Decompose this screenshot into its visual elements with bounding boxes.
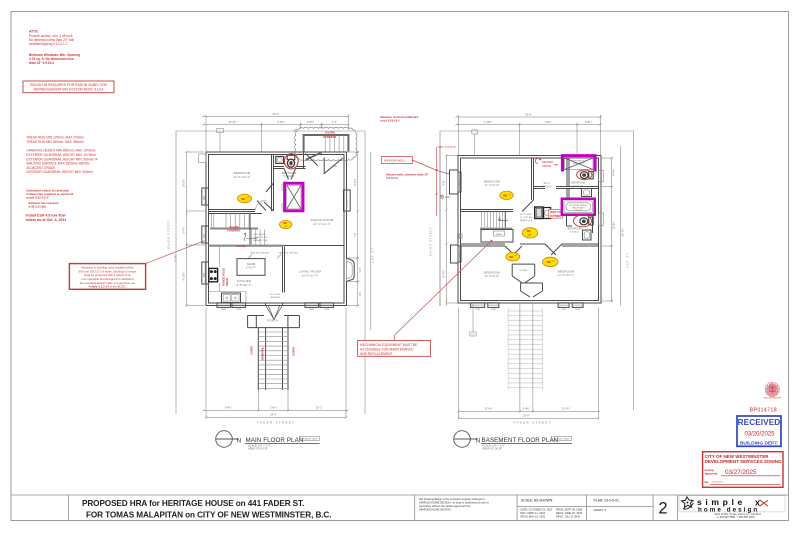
svg-text:W.I.C.: W.I.C. xyxy=(544,182,551,185)
svg-text:REVS: MAY 10, 2032: REVS: MAY 10, 2032 xyxy=(521,515,546,519)
svg-text:VAULTED CEILING: VAULTED CEILING xyxy=(250,252,269,255)
svg-text:23'-0": 23'-0" xyxy=(525,113,532,117)
svg-text:2636: 2636 xyxy=(309,309,315,311)
svg-text:03/20/2025: 03/20/2025 xyxy=(744,432,775,438)
svg-text:5'-8¾": 5'-8¾" xyxy=(277,120,284,124)
svg-text:7'-8¼": 7'-8¼" xyxy=(544,120,551,124)
svg-text:DEPRESSURIZATION SYSTEM BCBC 9: DEPRESSURIZATION SYSTEM BCBC 9.13.4 xyxy=(34,88,104,92)
svg-text:9'-8¾": 9'-8¾" xyxy=(353,178,357,185)
svg-text:INTERIOR GUARDRAIL HEIGHT MIN.: INTERIOR GUARDRAIL HEIGHT MIN. 900mm xyxy=(26,170,93,174)
svg-text:4'-6": 4'-6" xyxy=(358,291,362,296)
svg-text:FADER STREET: FADER STREET xyxy=(257,420,295,424)
svg-text:weatherstripping 9.10.2.1.2: weatherstripping 9.10.2.1.2 xyxy=(29,42,68,46)
svg-text:LOT 57: LOT 57 xyxy=(371,247,375,263)
svg-text:BASEMENT FLOOR PLAN: BASEMENT FLOOR PLAN xyxy=(482,437,559,444)
svg-text:11'-6¾": 11'-6¾" xyxy=(485,407,494,411)
svg-text:BATHROOM: BATHROOM xyxy=(571,181,585,184)
svg-text:3'-8½": 3'-8½" xyxy=(307,120,314,124)
svg-text:BEDROOM: BEDROOM xyxy=(234,171,251,175)
svg-text:PLAN: 23-0-6-01: PLAN: 23-0-6-01 xyxy=(594,499,620,503)
svg-text:BP014718: BP014718 xyxy=(750,408,777,414)
svg-text:ROUGH-IN REQUIRED FOR RADON SU: ROUGH-IN REQUIRED FOR RADON SUBFLOOR xyxy=(30,83,107,87)
svg-text:BEDROOM: BEDROOM xyxy=(484,271,501,275)
svg-text:2036: 2036 xyxy=(491,309,497,311)
svg-text:MECHANICAL EQUIPMENT MUST BE: MECHANICAL EQUIPMENT MUST BE xyxy=(360,343,418,347)
svg-text:FOR TOMAS MALAPITAN on CITY OF: FOR TOMAS MALAPITAN on CITY OF NEW WESTM… xyxy=(86,511,331,520)
svg-text:9'8"x4'8": 9'8"x4'8" xyxy=(574,210,582,212)
svg-text:Approved:: Approved: xyxy=(705,471,719,475)
svg-text:RECEIVED: RECEIVED xyxy=(738,418,781,427)
svg-text:5'-0¾": 5'-0¾" xyxy=(181,226,185,233)
svg-text:modonnor: modonnor xyxy=(712,480,724,484)
svg-text:INSULATION: INSULATION xyxy=(573,162,585,165)
svg-text:7'-9": 7'-9" xyxy=(353,232,357,237)
svg-text:SD: SD xyxy=(527,229,531,233)
svg-text:BATHROOM: BATHROOM xyxy=(568,227,582,230)
svg-text:12'-2¼": 12'-2¼" xyxy=(442,270,446,279)
svg-text:BEDROOM: BEDROOM xyxy=(558,270,575,274)
svg-text:2036: 2036 xyxy=(236,309,242,311)
svg-text:GUARD: GUARD xyxy=(236,245,245,248)
svg-text:drain: drain xyxy=(445,196,451,199)
svg-text:BUILDING DEPT.: BUILDING DEPT. xyxy=(740,441,778,447)
svg-text:REVS: JUNE 07, 2023: REVS: JUNE 07, 2023 xyxy=(556,511,583,515)
svg-text:VAULTED CEILING: VAULTED CEILING xyxy=(279,252,298,255)
svg-text:-12'-4"x13'-0"-: -12'-4"x13'-0"- xyxy=(557,274,575,277)
svg-text:WASH: WASH xyxy=(496,233,502,236)
svg-text:9.32.3.3.1(b): 9.32.3.3.1(b) xyxy=(29,205,46,209)
svg-text:@ 7 7/8" EA.: @ 7 7/8" EA. xyxy=(520,216,533,219)
svg-text:5046: 5046 xyxy=(332,166,338,168)
svg-text:-12'-2"x9'-8"-: -12'-2"x9'-8"- xyxy=(484,184,500,187)
svg-text:HANDRAIL: HANDRAIL xyxy=(262,346,265,360)
svg-text:AREA 707.00 SF: AREA 707.00 SF xyxy=(482,446,502,450)
svg-text:DN 14 RISE: DN 14 RISE xyxy=(254,234,266,236)
svg-text:5'-1"x12'-1": 5'-1"x12'-1" xyxy=(283,176,295,178)
svg-text:CO: CO xyxy=(284,226,288,228)
svg-text:4'-8¼": 4'-8¼" xyxy=(585,120,592,124)
svg-text:9'-10½": 9'-10½" xyxy=(181,272,185,281)
svg-text:DATE: OCTOBER 25, 2007: DATE: OCTOBER 25, 2007 xyxy=(521,508,553,512)
svg-text:DINING ROOM: DINING ROOM xyxy=(311,218,334,222)
svg-text:-9'-5"x10'-2"-: -9'-5"x10'-2"- xyxy=(235,284,252,287)
svg-text:NEWAIL 7'-50": NEWAIL 7'-50" xyxy=(254,239,269,242)
svg-text:23'-0": 23'-0" xyxy=(270,413,277,417)
svg-text:ISLAND: ISLAND xyxy=(247,263,256,266)
svg-text:CLOSET: CLOSET xyxy=(519,270,528,272)
svg-text:10'-2¼": 10'-2¼" xyxy=(181,179,185,188)
svg-text:AREA 707.00 SF: AREA 707.00 SF xyxy=(248,446,268,450)
svg-text:SIMPLEX HOME DESIGN.: SIMPLEX HOME DESIGN. xyxy=(419,508,452,512)
svg-text:2036: 2036 xyxy=(561,309,567,311)
svg-text:10'-1": 10'-1" xyxy=(316,406,323,410)
svg-text:4046: 4046 xyxy=(204,196,206,200)
svg-text:03/27/2025: 03/27/2025 xyxy=(725,469,757,476)
svg-text:SD: SD xyxy=(283,221,287,225)
svg-text:Window wells, minimum width 30: Window wells, minimum width 30" xyxy=(386,172,429,176)
svg-text:2636: 2636 xyxy=(324,309,330,311)
svg-text:By:: By: xyxy=(705,480,709,484)
svg-text:11'-0¾": 11'-0¾" xyxy=(562,407,571,411)
svg-text:SPACE: SPACE xyxy=(542,164,551,168)
svg-text:N: N xyxy=(476,438,481,445)
svg-text:12'-6¾": 12'-6¾" xyxy=(229,120,238,124)
svg-text:SCALE: AS SHOWN: SCALE: AS SHOWN xyxy=(521,499,553,503)
svg-text:SIMPLEX HOME DESIGN. no body i: SIMPLEX HOME DESIGN. no body is authoriz… xyxy=(419,501,489,505)
svg-text:AS-BUILT VIEW: AS-BUILT VIEW xyxy=(301,437,318,440)
svg-text:9'-4¾": 9'-4¾" xyxy=(612,168,616,175)
svg-text:2: 2 xyxy=(658,500,667,518)
svg-text:CO: CO xyxy=(528,234,532,237)
svg-text:toilets as of Oct. 4, 2011: toilets as of Oct. 4, 2011 xyxy=(26,218,67,222)
svg-text:6'-8¾": 6'-8¾" xyxy=(225,406,232,410)
svg-text:4'-0": 4'-0" xyxy=(358,267,362,272)
svg-text:3068 W/S: 3068 W/S xyxy=(270,297,280,299)
svg-text:AS-BUILT VIEW: AS-BUILT VIEW xyxy=(553,437,570,440)
svg-text:than 15" 9.9.10.2: than 15" 9.9.10.2 xyxy=(29,61,54,65)
svg-text:REVS: JULY 8, 2034: REVS: JULY 8, 2034 xyxy=(556,515,581,519)
svg-text:HANDRAIL: HANDRAIL xyxy=(323,135,337,139)
svg-text:GUARD: GUARD xyxy=(325,131,335,135)
svg-text:12'-8¾": 12'-8¾" xyxy=(612,221,616,230)
svg-text:ACCESSIBLE FOR MAINTENANCE: ACCESSIBLE FOR MAINTENANCE xyxy=(360,347,414,351)
svg-text:3'-4"x7'-7": 3'-4"x7'-7" xyxy=(246,268,256,270)
svg-text:3046: 3046 xyxy=(459,254,461,258)
svg-text:7'-1"x4'-11": 7'-1"x4'-11" xyxy=(573,185,584,187)
svg-text:BEDROOM: BEDROOM xyxy=(484,180,501,184)
svg-text:Article 4.1.5.14 of the BCBC.: Article 4.1.5.14 of the BCBC. xyxy=(89,285,127,289)
svg-text:2'-4¾": 2'-4¾" xyxy=(523,407,530,411)
svg-text:2'-0¾": 2'-0¾" xyxy=(270,406,277,410)
svg-text:F.D.: F.D. xyxy=(471,334,475,336)
svg-text:MAIN FLOOR PLAN: MAIN FLOOR PLAN xyxy=(246,437,304,444)
svg-text:DEVELOPMENT SERVICES ZONING: DEVELOPMENT SERVICES ZONING xyxy=(705,459,782,464)
svg-text:this drawing/design is the exc: this drawing/design is the exclusive pro… xyxy=(419,497,485,501)
svg-text:WALLBOARD: WALLBOARD xyxy=(572,206,585,209)
svg-text:17'-8¾": 17'-8¾" xyxy=(174,254,178,263)
svg-text:REVS: SEPT 09, 2008: REVS: SEPT 09, 2008 xyxy=(556,508,583,512)
svg-text:MAJOR STREET: MAJOR STREET xyxy=(168,220,171,249)
svg-text:9'-8": 9'-8" xyxy=(442,180,446,185)
svg-text:req'd 9.29.10.4: req'd 9.29.10.4 xyxy=(380,119,400,123)
svg-text:DRWN: 3: DRWN: 3 xyxy=(594,508,607,512)
svg-text:-13'-5"x12'-9"-: -13'-5"x12'-9"- xyxy=(301,275,320,278)
svg-text:23'-0": 23'-0" xyxy=(272,112,279,116)
svg-text:-11'-8"x10'-2"-: -11'-8"x10'-2"- xyxy=(233,176,251,179)
svg-text:HANDRAIL: HANDRAIL xyxy=(227,229,241,232)
svg-text:Install CSA 4.8 low flow: Install CSA 4.8 low flow xyxy=(26,213,66,217)
svg-text:MAJOR STREET: MAJOR STREET xyxy=(430,227,433,256)
svg-text:HEADR. 6'-8": HEADR. 6'-8" xyxy=(520,219,533,222)
svg-text:9.9.10.1.2: 9.9.10.1.2 xyxy=(386,176,398,180)
svg-text:-10'-4"x9'-8"-: -10'-4"x9'-8"- xyxy=(484,275,500,278)
svg-text:4046: 4046 xyxy=(459,182,461,186)
svg-text:FADER STREET: FADER STREET xyxy=(514,420,552,424)
svg-text:TREAD RUN MIN 255mm, MAX 355mm: TREAD RUN MIN 255mm, MAX 355mm xyxy=(26,140,83,144)
svg-text:reproduce without the written: reproduce without the written approval f… xyxy=(419,504,471,508)
svg-text:panel 9.32.3.5.3: panel 9.32.3.5.3 xyxy=(26,196,48,200)
svg-text:VENT TO: VENT TO xyxy=(550,211,561,214)
svg-text:4'-3": 4'-3" xyxy=(332,120,337,124)
svg-text:KITCHEN: KITCHEN xyxy=(237,279,252,283)
svg-text:5046: 5046 xyxy=(204,234,206,238)
svg-text:UP 14 RISE: UP 14 RISE xyxy=(520,214,532,216)
svg-text:WINDOW WELL: WINDOW WELL xyxy=(384,158,406,162)
svg-text:PROPOSED R22: PROPOSED R22 xyxy=(571,161,587,163)
svg-text:4'-9"x8'-1": 4'-9"x8'-1" xyxy=(570,231,580,233)
svg-text:LIVING ROOM: LIVING ROOM xyxy=(299,270,322,274)
svg-text:RANGE HOOD: RANGE HOOD xyxy=(222,268,226,286)
svg-text:HEAD. 10'-03": HEAD. 10'-03" xyxy=(254,236,268,239)
svg-text:23'-0": 23'-0" xyxy=(523,414,530,418)
svg-text:REV: APRIL 11, 2022: REV: APRIL 11, 2022 xyxy=(521,511,546,515)
svg-text:OUTSIDE: OUTSIDE xyxy=(550,215,561,218)
svg-text:-13'-1"x12'-2"-: -13'-1"x12'-2"- xyxy=(313,223,332,226)
svg-text:22'-0¾": 22'-0¾" xyxy=(621,228,625,237)
svg-text:2036: 2036 xyxy=(575,309,581,311)
svg-text:N: N xyxy=(237,438,242,445)
svg-text:4046: 4046 xyxy=(204,273,206,277)
svg-text:p: 604 597 5588 f: 604 597 3: p: 604 597 5588 f: 604 597 3513 xyxy=(717,516,755,519)
svg-text:simple: simple xyxy=(697,497,746,507)
svg-text:7'-10¾": 7'-10¾" xyxy=(484,120,493,124)
svg-text:REQ'D: REQ'D xyxy=(225,278,229,286)
svg-text:GUARD: GUARD xyxy=(293,347,296,356)
svg-text:WIN. 2'-6"x4'-0": WIN. 2'-6"x4'-0" xyxy=(438,145,456,149)
svg-text:AND REPLACEMENT: AND REPLACEMENT xyxy=(360,352,393,356)
svg-text:LOT 57: LOT 57 xyxy=(626,252,630,268)
svg-text:2636: 2636 xyxy=(221,309,227,311)
svg-text:PROPOSED HRA for HERITAGE HOUS: PROPOSED HRA for HERITAGE HOUSE on 441 F… xyxy=(82,499,304,508)
svg-text:GUARD: GUARD xyxy=(251,346,254,355)
svg-text:PORCH: PORCH xyxy=(267,319,279,323)
svg-text:SC DOOR: SC DOOR xyxy=(270,294,281,296)
svg-text:4046: 4046 xyxy=(347,200,349,204)
svg-text:NEW WESTMINSTER: NEW WESTMINSTER xyxy=(764,398,783,400)
svg-text:2036: 2036 xyxy=(475,309,481,311)
